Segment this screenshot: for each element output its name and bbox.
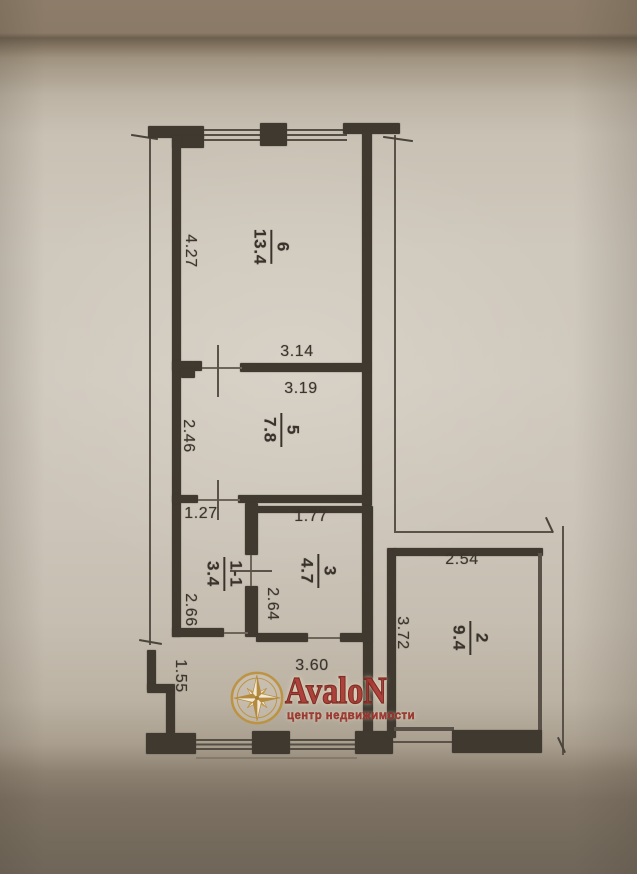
dimension-label: 2.64 xyxy=(264,587,280,621)
dimension-extension-line xyxy=(149,133,151,645)
door-opening xyxy=(308,637,340,639)
dimension-label: 1.55 xyxy=(172,659,188,693)
window-symbol xyxy=(204,129,262,141)
wall-segment xyxy=(260,123,287,146)
wall-segment xyxy=(362,132,372,506)
wall-segment xyxy=(538,553,542,733)
wall-segment xyxy=(252,731,290,754)
dimension-extension-line xyxy=(394,135,396,533)
wall-segment xyxy=(172,136,181,637)
room-2-label: 2 9.4 xyxy=(450,621,491,655)
door-opening xyxy=(202,367,242,369)
dimension-extension-line xyxy=(196,757,357,759)
room-area: 13.4 xyxy=(251,229,269,265)
wall-segment xyxy=(362,506,373,642)
room-area: 3.4 xyxy=(204,561,222,587)
wall-segment xyxy=(245,503,258,555)
fraction-bar xyxy=(280,413,282,447)
tick-mark xyxy=(383,136,413,142)
dimension-label: 3.72 xyxy=(394,616,410,650)
dimension-label: 3.14 xyxy=(280,344,314,360)
brand-text: AvaloN xyxy=(285,672,387,710)
dimension-extension-line xyxy=(396,531,553,533)
dimension-label: 1.27 xyxy=(184,506,218,522)
dimension-label: 2.66 xyxy=(182,593,198,627)
room-3-label: 3 4.7 xyxy=(298,554,339,588)
room-area: 4.7 xyxy=(298,558,316,584)
dimension-label: 2.54 xyxy=(445,552,479,568)
room-6-label: 6 13.4 xyxy=(251,229,292,265)
room-number: 1-1 xyxy=(227,561,245,588)
fraction-bar xyxy=(270,230,272,264)
room-number: 5 xyxy=(284,425,302,435)
dimension-extension-line xyxy=(562,526,564,755)
door-opening xyxy=(224,632,248,634)
wall-segment xyxy=(172,495,198,503)
dimension-label: 2.46 xyxy=(180,419,196,453)
room-number: 3 xyxy=(321,566,339,576)
wall-segment xyxy=(256,633,308,642)
dimension-label: 3.19 xyxy=(284,381,318,397)
dimension-extension-line xyxy=(217,345,219,397)
room-1-1-label: 1-1 3.4 xyxy=(204,557,245,591)
door-opening xyxy=(198,499,240,501)
wall-segment xyxy=(146,733,196,754)
compass-rose-icon xyxy=(228,669,286,727)
fraction-bar xyxy=(223,557,225,591)
dimension-extension-line xyxy=(390,741,454,743)
floor-plan-photo: 6 13.4 5 7.8 1-1 3.4 3 4.7 2 9.4 4.27 3.… xyxy=(0,0,637,874)
wall-segment xyxy=(166,692,175,735)
wall-segment xyxy=(240,363,371,372)
wall-segment xyxy=(238,495,371,503)
tagline-text: центр недвижимости xyxy=(287,709,415,721)
dimension-label: 4.27 xyxy=(182,234,198,268)
room-number: 6 xyxy=(274,242,292,252)
window-symbol xyxy=(287,129,347,141)
window-symbol xyxy=(290,739,357,750)
room-5-label: 5 7.8 xyxy=(261,413,302,447)
fraction-bar xyxy=(317,554,319,588)
room-area: 7.8 xyxy=(261,417,279,443)
wall-segment xyxy=(394,727,454,731)
window-symbol xyxy=(196,739,254,750)
dimension-label: 1.77 xyxy=(294,509,328,525)
wall-segment xyxy=(181,369,195,378)
plan-canvas: 6 13.4 5 7.8 1-1 3.4 3 4.7 2 9.4 4.27 3.… xyxy=(0,0,637,874)
wall-segment xyxy=(452,730,542,753)
wall-segment xyxy=(245,586,258,637)
room-area: 9.4 xyxy=(450,625,468,651)
room-number: 2 xyxy=(473,633,491,643)
wall-segment xyxy=(172,628,224,637)
wall-segment xyxy=(340,633,372,642)
fraction-bar xyxy=(469,621,471,655)
